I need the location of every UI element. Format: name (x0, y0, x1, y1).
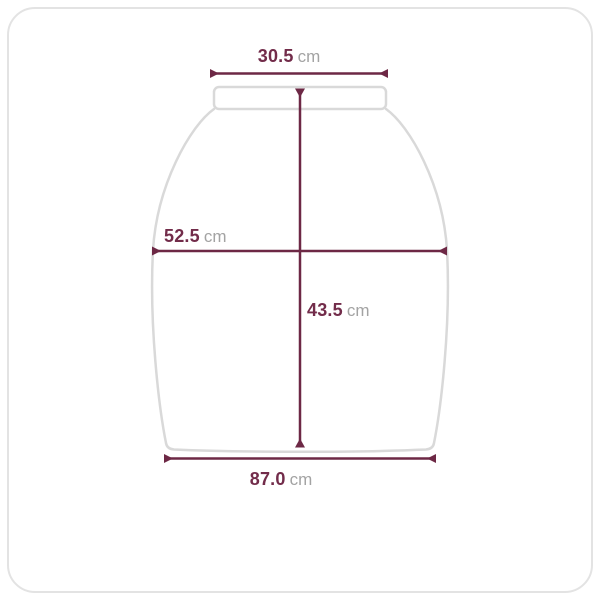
arrowhead-bottom-icon (295, 439, 305, 448)
hem-width-unit: cm (290, 471, 313, 488)
length-label: 43.5 cm (307, 301, 370, 319)
length-value: 43.5 (307, 301, 343, 319)
dimension-hem-width (164, 454, 436, 463)
arrowhead-left-icon (152, 247, 161, 256)
top-width-value: 30.5 (258, 47, 294, 65)
hem-width-value: 87.0 (250, 470, 286, 488)
dimension-length (295, 89, 305, 448)
side-width-value: 52.5 (164, 227, 200, 245)
side-width-unit: cm (204, 228, 227, 245)
arrowhead-right-icon (427, 454, 436, 463)
arrowhead-right-icon (438, 247, 447, 256)
side-width-label: 52.5 cm (164, 227, 227, 245)
arrowhead-left-icon (210, 69, 219, 78)
garment-diagram (0, 0, 600, 600)
size-guide-page: 30.5 cm 52.5 cm 43.5 cm 87.0 cm (0, 0, 600, 600)
arrowhead-right-icon (379, 69, 388, 78)
top-width-unit: cm (298, 48, 321, 65)
arrowhead-left-icon (164, 454, 173, 463)
length-unit: cm (347, 302, 370, 319)
top-width-label: 30.5 cm (258, 47, 321, 65)
dimension-top-width (210, 69, 388, 78)
hem-width-label: 87.0 cm (250, 470, 313, 488)
